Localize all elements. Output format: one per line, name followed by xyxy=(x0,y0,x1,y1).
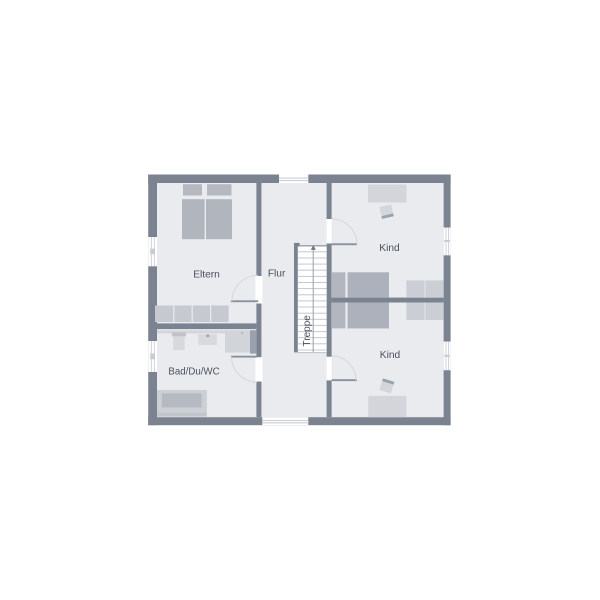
svg-text:Bad/Du/WC: Bad/Du/WC xyxy=(168,367,219,378)
svg-text:Kind: Kind xyxy=(380,350,401,361)
svg-text:Eltern: Eltern xyxy=(193,269,220,280)
svg-text:Flur: Flur xyxy=(268,269,286,280)
svg-text:Treppe: Treppe xyxy=(302,315,313,347)
svg-text:Kind: Kind xyxy=(379,243,400,254)
